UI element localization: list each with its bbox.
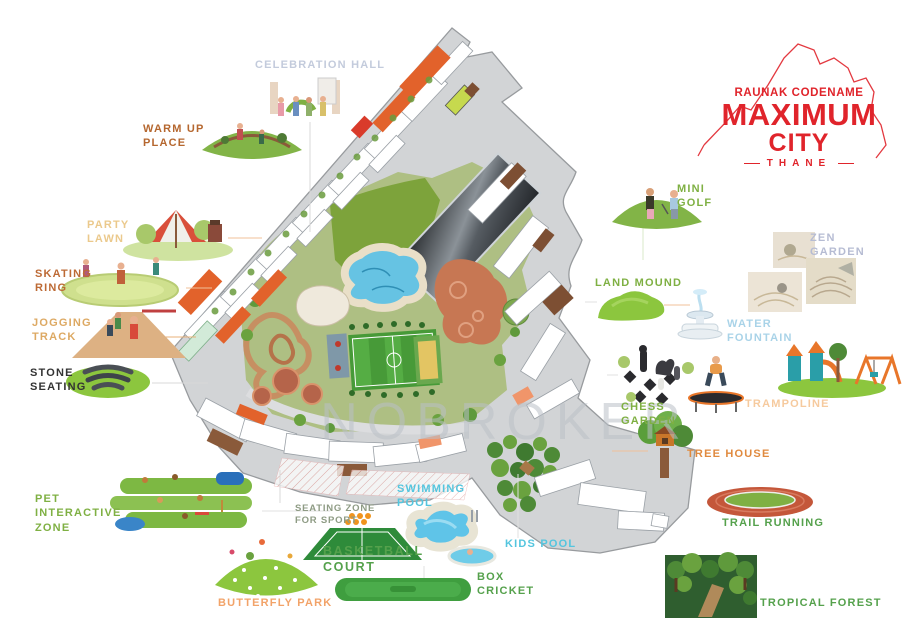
label-celebration-hall: CELEBRATION HALL — [255, 58, 385, 72]
pet-interactive-zone-illustration — [110, 472, 252, 531]
party-lawn-illustration — [123, 210, 233, 261]
label-tropical-forest: TROPICAL FOREST — [760, 596, 882, 610]
label-swimming-pool: SWIMMING POOL — [397, 482, 465, 511]
warm-up-place-illustration — [202, 123, 302, 159]
land-mound-illustration — [598, 291, 664, 320]
label-chess-garden: CHESS GARDEN — [621, 400, 676, 429]
label-zen-garden: ZEN GARDEN — [810, 231, 865, 260]
logo-thane-text: THANE — [696, 158, 902, 169]
label-seating-zone-for-sport: SEATING ZONE FOR SPORT — [295, 503, 375, 528]
label-warm-up-place: WARM UP PLACE — [143, 122, 205, 151]
label-party-lawn: PARTY LAWN — [87, 218, 129, 247]
masterplan-poster: NOBROKER RAUNAK CODENAME MAXIMUM CITY TH… — [0, 0, 906, 640]
water-fountain-illustration — [678, 289, 722, 339]
label-trampoline: TRAMPOLINE — [745, 397, 830, 411]
label-mini-golf: MINI GOLF — [677, 182, 712, 211]
celebration-hall-illustration — [270, 78, 340, 116]
logo-city-text: CITY — [696, 130, 902, 156]
playground-illustration — [778, 341, 900, 398]
podium-pool — [345, 247, 423, 308]
butterfly-park-illustration — [215, 539, 318, 598]
box-cricket-illustration — [335, 578, 471, 601]
label-basketball-court: BASKETBALL COURT — [323, 543, 424, 576]
label-water-fountain: WATER FOUNTAIN — [727, 317, 793, 346]
label-stone-seating: STONE SEATING — [30, 366, 86, 395]
trail-running-illustration — [707, 487, 813, 517]
label-kids-pool: KIDS POOL — [505, 537, 576, 551]
label-butterfly-park: BUTTERFLY PARK — [218, 596, 332, 610]
brand-logo: RAUNAK CODENAME MAXIMUM CITY THANE — [696, 30, 902, 176]
label-box-cricket: BOX CRICKET — [477, 570, 534, 599]
label-jogging-track: JOGGING TRACK — [32, 316, 92, 345]
label-skating-ring: SKATING RING — [35, 267, 92, 296]
label-trail-running: TRAIL RUNNING — [722, 516, 824, 530]
tropical-forest-illustration — [665, 552, 757, 618]
label-land-mound: LAND MOUND — [595, 276, 682, 290]
logo-maximum-text: MAXIMUM — [696, 99, 902, 130]
kids-pool-illustration — [449, 547, 495, 565]
label-tree-house: TREE HOUSE — [687, 447, 771, 461]
swimming-pool-illustration — [410, 506, 477, 547]
label-pet-interactive-zone: PET INTERACTIVE ZONE — [35, 492, 122, 535]
